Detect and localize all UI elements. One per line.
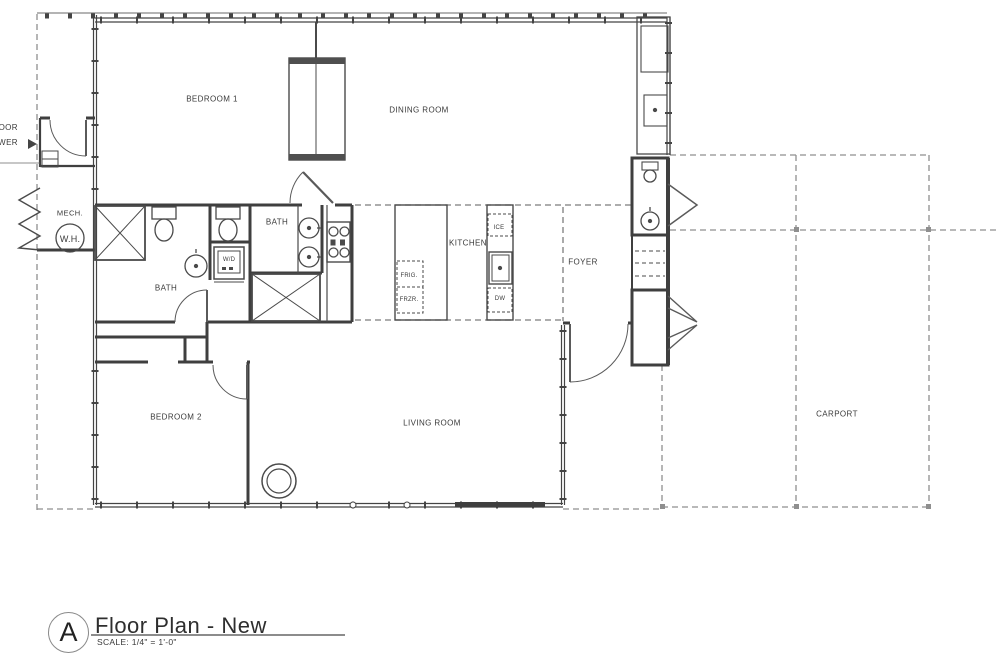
clipped-label-line-2: WER: [0, 138, 18, 147]
clipped-label-line-1: OOR: [0, 123, 18, 132]
wood-stove: [262, 464, 296, 498]
powder-room-door: [668, 184, 697, 226]
toilet: [152, 207, 176, 241]
roof-overhang-dashed-lines: [37, 14, 1000, 510]
kitchen-island-sink: [487, 205, 513, 320]
room-label-living-room: LIVING ROOM: [403, 419, 461, 428]
powder-room-fixtures: [641, 162, 659, 230]
foyer-closet-doors: [668, 296, 697, 350]
title-underline: [91, 634, 345, 636]
step: [42, 151, 58, 159]
room-label-kitchen: KITCHEN: [449, 239, 487, 248]
shower-stall-x: [95, 206, 145, 260]
room-label-mech: MECH.: [57, 209, 83, 218]
room-label-dining-room: DINING ROOM: [389, 106, 449, 115]
room-label-carport: CARPORT: [816, 410, 858, 419]
bedroom1-door: [290, 172, 333, 203]
bath-door: [175, 290, 207, 322]
bath-sink: [185, 249, 207, 277]
washer-dryer-label: W/D: [223, 257, 235, 263]
room-label-bath-hall: BATH: [155, 284, 177, 293]
door-direction-arrow: [28, 139, 37, 149]
washer-dryer-unit: [214, 247, 244, 282]
dishwasher-label: DW: [495, 296, 505, 302]
freezer-label: FRZR.: [400, 297, 419, 303]
fridge-label: FRIG.: [401, 273, 418, 279]
detail-marker-circle: A: [48, 612, 89, 653]
interior-walls: [37, 118, 668, 505]
ice-maker-label: ICE: [494, 225, 505, 231]
room-label-bedroom-2: BEDROOM 2: [150, 413, 202, 422]
toilet: [216, 207, 240, 241]
detail-letter: A: [59, 617, 77, 648]
drawing-scale: SCALE: 1/4" = 1'-0": [97, 637, 177, 647]
pantry-closet-x: [252, 274, 320, 321]
linen-closet-shelves: [635, 251, 665, 276]
top-right-counter: [637, 17, 670, 154]
room-label-bath-master: BATH: [266, 218, 288, 227]
double-vanity-sinks: [298, 205, 321, 273]
room-label-foyer: FOYER: [568, 258, 598, 267]
fireplace-divider: [289, 22, 345, 160]
bedroom2-door: [213, 365, 247, 399]
entry-door: [570, 324, 628, 382]
cooktop-range: [327, 205, 350, 322]
floor-plan-sheet: BEDROOM 1 DINING ROOM BATH BATH KITCHEN …: [0, 0, 1000, 667]
water-heater-label: W.H.: [60, 234, 80, 244]
room-label-bedroom-1: BEDROOM 1: [186, 95, 238, 104]
door-swings: [50, 120, 697, 399]
floor-plan-drawing: [0, 0, 1000, 667]
